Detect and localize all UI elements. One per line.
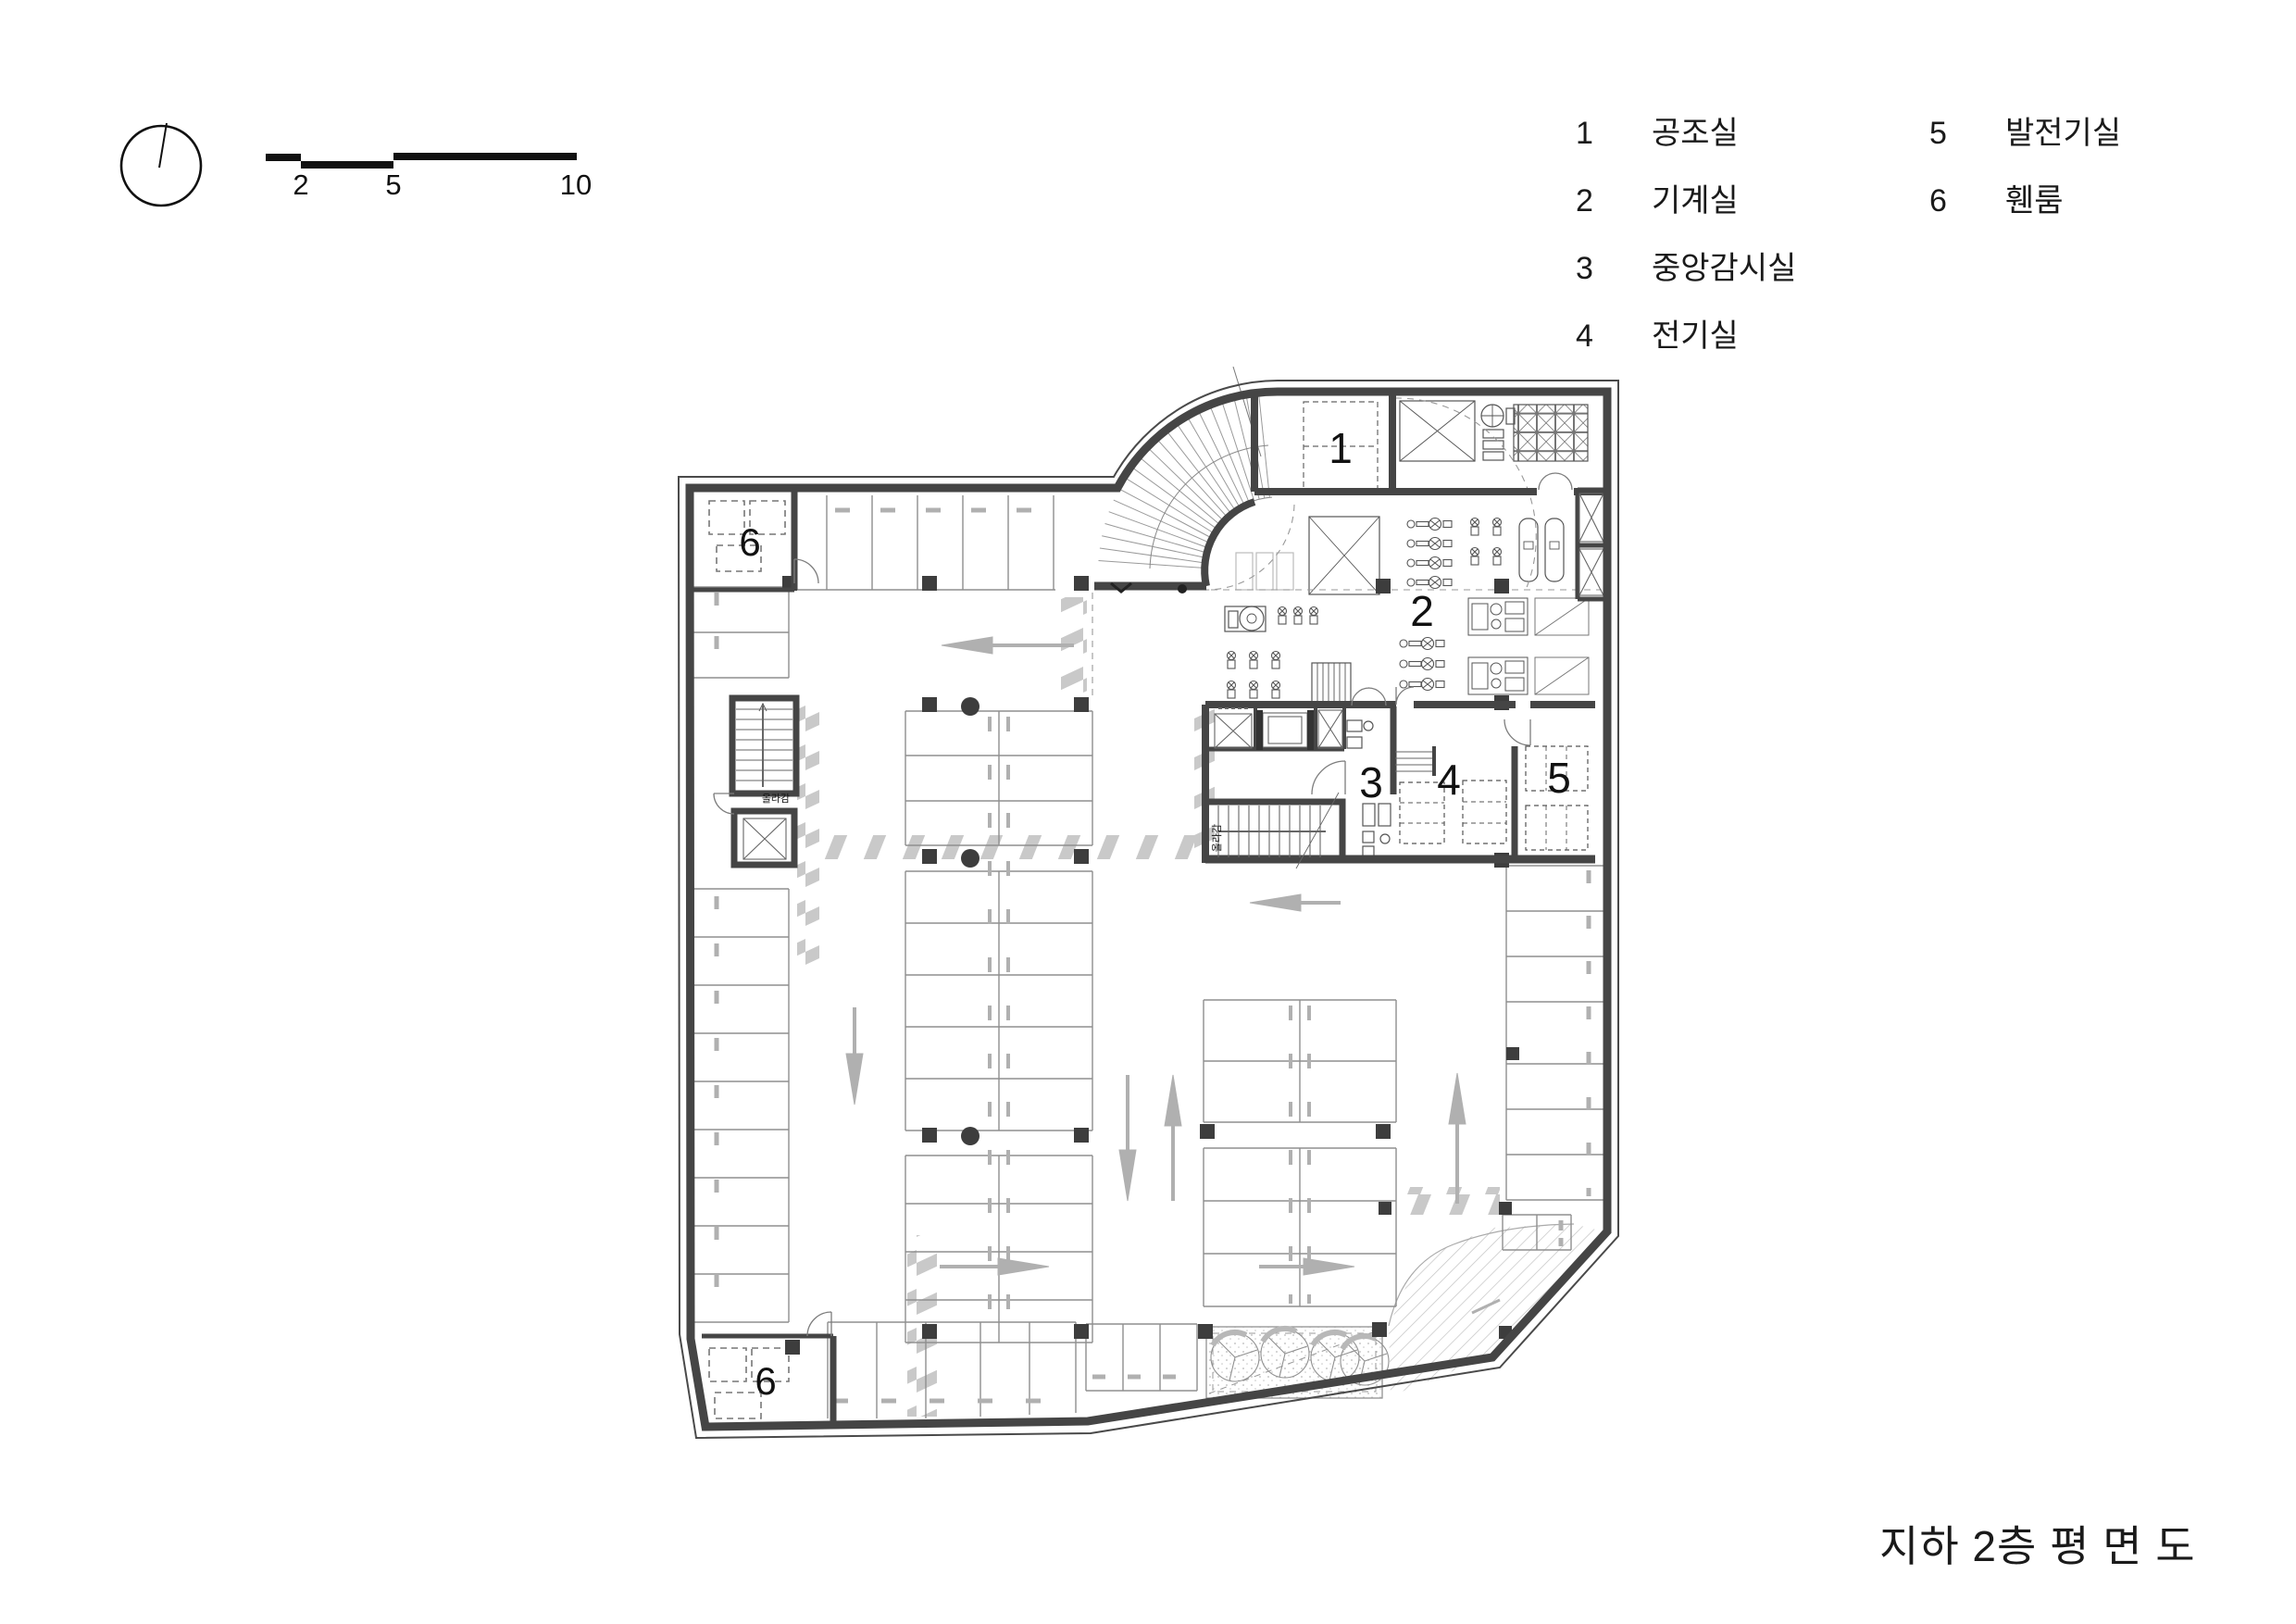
- structural-columns: [782, 576, 1519, 1355]
- traffic-arrows: [846, 637, 1466, 1275]
- arrow-left-icon: [942, 637, 1074, 654]
- legend-num: 4: [1576, 319, 1652, 353]
- arrow-right-icon: [940, 1258, 1049, 1275]
- legend-label: 전기실: [1652, 319, 1739, 354]
- label-room-1: 1: [1329, 424, 1353, 472]
- legend-num: 1: [1576, 117, 1652, 150]
- arrow-down-icon: [846, 1007, 863, 1105]
- legend-row: 6휀룸: [1929, 184, 2064, 218]
- sheet-title: 지하 2층 평 면 도: [1879, 1513, 2196, 1574]
- stair-direction-note: 올라감: [762, 793, 790, 805]
- legend-label: 중앙감시실: [1652, 251, 1796, 286]
- legend-row: 2기계실: [1576, 184, 1739, 218]
- scale-tick-2: 2: [293, 169, 308, 201]
- legend-row: 3중앙감시실: [1576, 252, 1796, 285]
- arrow-down-icon: [1119, 1075, 1136, 1201]
- stair-direction-note: 올라감: [1211, 824, 1223, 852]
- legend-num: 5: [1929, 117, 2005, 150]
- scale-tick-10: 10: [560, 169, 592, 201]
- label-room-6-bottom: 6: [755, 1359, 776, 1403]
- label-room-6-top: 6: [739, 520, 760, 564]
- legend-label: 발전기실: [2005, 116, 2121, 151]
- scale-tick-5: 5: [385, 169, 401, 201]
- legend-row: 1공조실: [1576, 117, 1739, 150]
- floor-plan-sheet: 2 5 10: [0, 0, 2296, 1624]
- arrow-up-icon: [1165, 1075, 1181, 1201]
- legend-row: 5발전기실: [1929, 117, 2121, 150]
- legend-row: 4전기실: [1576, 319, 1739, 353]
- legend-label: 휀룸: [2005, 183, 2064, 219]
- label-room-5: 5: [1547, 754, 1571, 802]
- legend-num: 2: [1576, 184, 1652, 218]
- scale-bar: 2 5 10: [266, 153, 592, 201]
- legend-label: 기계실: [1652, 183, 1739, 219]
- arrow-right-icon: [1259, 1258, 1354, 1275]
- legend-num: 6: [1929, 184, 2005, 218]
- label-room-4: 4: [1437, 756, 1461, 804]
- legend-num: 3: [1576, 252, 1652, 285]
- legend-label: 공조실: [1652, 116, 1739, 151]
- label-room-3: 3: [1359, 758, 1383, 806]
- arrow-left-icon: [1250, 894, 1341, 911]
- label-room-2: 2: [1410, 587, 1434, 635]
- plan-drawing: 2 5 10: [0, 0, 2296, 1624]
- arrow-up-icon: [1449, 1073, 1466, 1204]
- north-arrow-icon: [121, 123, 201, 206]
